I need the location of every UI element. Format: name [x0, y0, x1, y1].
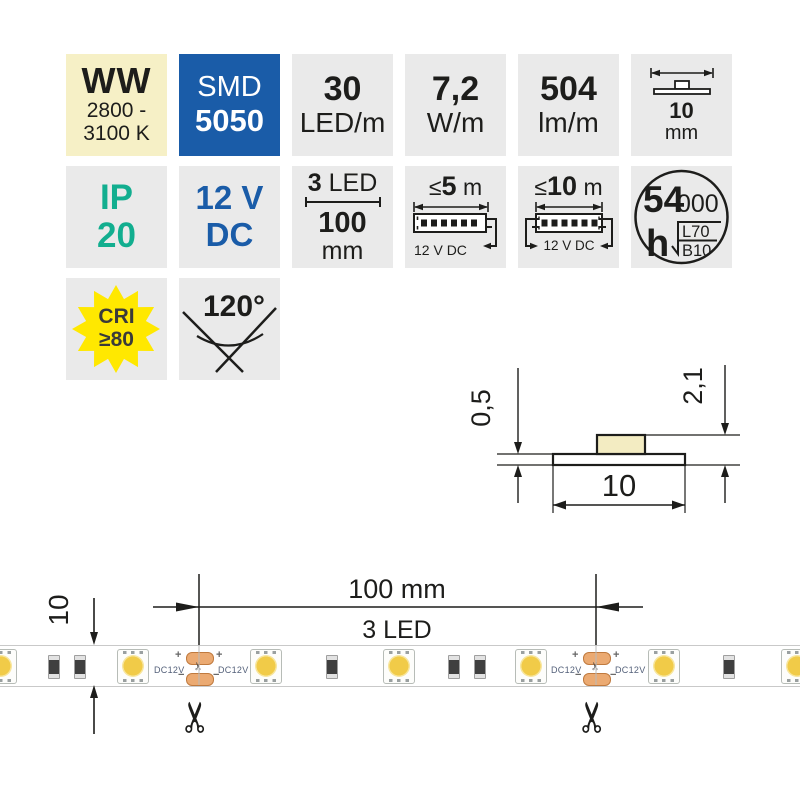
density-unit: LED/m	[300, 108, 386, 138]
flux-unit: lm/m	[538, 108, 599, 138]
scissors-icon: ✂	[569, 699, 616, 734]
polarity-plus: +	[175, 650, 181, 661]
power-value: 7,2	[432, 72, 479, 107]
solder-pad	[186, 673, 214, 686]
tile-beam-angle: 120°	[179, 278, 280, 380]
led-module	[250, 649, 282, 684]
xsec-led-chip	[597, 435, 645, 454]
max5-value: 5	[442, 171, 457, 201]
led-strip-illustration: ✂ + − + − DC12V DC12V ✂ + − + − DC12V DC…	[0, 645, 800, 687]
tile-ip-rating: IP 20	[66, 166, 167, 268]
led-emitter	[0, 655, 12, 677]
temp-range-line1: 2800 -	[87, 99, 147, 123]
temp-range-line2: 3100 K	[83, 122, 150, 146]
led-module	[515, 649, 547, 684]
mini-scissors-icon: ✂	[589, 659, 603, 673]
cut-led-count: 3	[308, 169, 322, 197]
tile-max-run-double-feed: ≤10 m 12 V DC	[518, 166, 619, 268]
tile-supply-voltage: 12 V DC	[179, 166, 280, 268]
double-feed-supply-label: 12 V DC	[543, 238, 594, 253]
polarity-plus: +	[613, 650, 619, 661]
tile-led-package: SMD 5050	[179, 54, 280, 156]
single-feed-supply-label: 12 V DC	[414, 242, 467, 258]
mini-scissors-icon: ✂	[192, 659, 206, 673]
cut-length-value: 100	[318, 208, 366, 238]
resistor	[48, 655, 60, 679]
cri-value: ≥80	[99, 329, 134, 352]
led-strip-datasheet: WW 2800 - 3100 K SMD 5050 30 LED/m 7,2 W…	[0, 0, 800, 800]
lifetime-zeros: 000	[677, 190, 719, 218]
led-module	[0, 649, 17, 684]
tile-luminous-flux: 504 lm/m	[518, 54, 619, 156]
density-value: 30	[324, 72, 362, 107]
tile-cut-unit: 3 LED 100 mm	[292, 166, 393, 268]
cut-length-unit: mm	[322, 239, 364, 264]
dc-label: DC12V	[154, 666, 177, 675]
max10-unit: m	[583, 174, 602, 200]
flux-value: 504	[540, 72, 597, 107]
package-size: 5050	[195, 104, 264, 138]
led-emitter	[653, 655, 675, 677]
tile-strip-width: 10 mm	[631, 54, 732, 156]
cut-point: ✂ + − + − DC12V DC12V	[154, 646, 244, 686]
voltage-value: 12 V	[196, 180, 264, 217]
single-feed-strip-icon: 12 V DC	[411, 202, 501, 262]
led-emitter	[122, 655, 144, 677]
power-unit: W/m	[427, 108, 485, 138]
tile-color-temperature: WW 2800 - 3100 K	[66, 54, 167, 156]
strip-width-dim-label: 10	[43, 594, 74, 625]
solder-pad	[583, 673, 611, 686]
strip-width-icon	[647, 67, 717, 99]
width-value: 10	[669, 99, 693, 122]
resistor	[74, 655, 86, 679]
beam-angle-value: 120°	[195, 292, 273, 322]
tile-power: 7,2 W/m	[405, 54, 506, 156]
width-unit: mm	[665, 123, 698, 143]
led-module	[781, 649, 800, 684]
led-emitter	[786, 655, 800, 677]
package-type: SMD	[197, 72, 261, 104]
xsec-width-label: 10	[602, 468, 636, 503]
ip-value: 20	[97, 217, 136, 256]
xsec-thickness-label: 0,5	[466, 389, 496, 427]
resistor	[723, 655, 735, 679]
dc-label: DC12V	[218, 666, 249, 675]
max5-lte: ≤	[429, 174, 442, 200]
lifetime-unit: h	[646, 223, 669, 265]
lifetime-circle-icon: 54 000 h L70 B10	[631, 166, 732, 268]
led-module	[383, 649, 415, 684]
polarity-plus: +	[216, 650, 222, 661]
pitch-led-count-label: 3 LED	[362, 616, 431, 644]
ip-prefix: IP	[100, 179, 133, 218]
cross-section-diagram: 0,5 2,1 10	[420, 358, 780, 528]
dc-label: DC12V	[615, 666, 646, 675]
lifetime-l70: L70	[682, 223, 710, 241]
scissors-icon: ✂	[172, 699, 219, 734]
voltage-type: DC	[206, 217, 254, 254]
max5-unit: m	[463, 174, 482, 200]
tile-led-density: 30 LED/m	[292, 54, 393, 156]
cri-label: CRI	[98, 306, 134, 329]
max10-lte: ≤	[534, 174, 547, 200]
resistor	[474, 655, 486, 679]
cut-point: ✂ + − + − DC12V DC12V	[551, 646, 641, 686]
max10-value: 10	[547, 171, 577, 201]
tile-max-run-single-feed: ≤5 m 12 V DC	[405, 166, 506, 268]
xsec-strip-base	[553, 454, 685, 465]
xsec-height-label: 2,1	[678, 367, 708, 405]
led-emitter	[388, 655, 410, 677]
tile-lifetime: 54 000 h L70 B10	[631, 166, 732, 268]
resistor	[326, 655, 338, 679]
lifetime-b10: B10	[682, 242, 711, 260]
led-module	[648, 649, 680, 684]
cut-led-unit: LED	[329, 169, 378, 197]
resistor	[448, 655, 460, 679]
led-emitter	[255, 655, 277, 677]
color-code: WW	[82, 64, 152, 98]
led-emitter	[520, 655, 542, 677]
led-module	[117, 649, 149, 684]
pitch-length-label: 100 mm	[348, 574, 446, 604]
dc-label: DC12V	[551, 666, 574, 675]
tile-cri: CRI ≥80	[66, 278, 167, 380]
double-feed-strip-icon: 12 V DC	[524, 202, 614, 262]
polarity-plus: +	[572, 650, 578, 661]
